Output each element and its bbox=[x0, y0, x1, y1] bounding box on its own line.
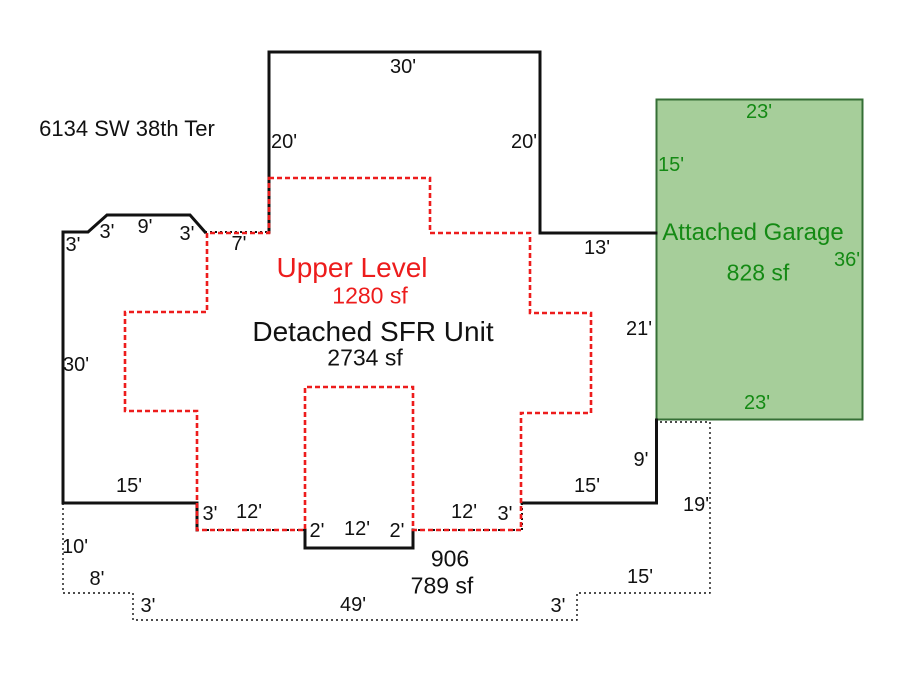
dim-main-left: 30' bbox=[63, 355, 89, 375]
dim-garage-top: 23' bbox=[746, 102, 772, 122]
dim-patio-bottom: 49' bbox=[340, 595, 366, 615]
dim-patio-left-v: 10' bbox=[62, 537, 88, 557]
garage-area: 828 sf bbox=[727, 262, 790, 285]
dim-corner-t: 9' bbox=[138, 217, 153, 237]
patio-area: 789 sf bbox=[411, 575, 474, 598]
dim-main-right-low: 9' bbox=[634, 450, 649, 470]
dim-patio-right-v: 19' bbox=[683, 495, 709, 515]
dim-main-bump-l: 2' bbox=[310, 521, 325, 541]
dim-patio-step-r: 3' bbox=[551, 596, 566, 616]
dim-main-top: 30' bbox=[390, 57, 416, 77]
dim-corner-d1: 3' bbox=[100, 222, 115, 242]
dim-main-upper-right: 20' bbox=[511, 132, 537, 152]
floorplan-sketch: 6134 SW 38th Ter Upper Level 1280 sf Det… bbox=[0, 0, 900, 675]
patio-id: 906 bbox=[431, 548, 469, 571]
sfr-title: Detached SFR Unit bbox=[252, 318, 493, 346]
dim-garage-right: 36' bbox=[834, 250, 860, 270]
dim-main-notch-r-v: 3' bbox=[498, 504, 513, 524]
dim-garage-left: 15' bbox=[658, 155, 684, 175]
dim-main-step: 13' bbox=[584, 238, 610, 258]
dim-patio-step-l: 3' bbox=[141, 596, 156, 616]
dim-corner-v: 3' bbox=[66, 235, 81, 255]
upper-level-title: Upper Level bbox=[277, 254, 428, 282]
dim-garage-bottom: 23' bbox=[744, 393, 770, 413]
patio-outline-path bbox=[63, 422, 710, 620]
dim-main-upper-left: 20' bbox=[271, 132, 297, 152]
dim-corner-d2: 3' bbox=[180, 224, 195, 244]
dim-main-bottom-right: 15' bbox=[574, 476, 600, 496]
dim-patio-right-h: 15' bbox=[627, 567, 653, 587]
garage-title: Attached Garage bbox=[662, 221, 843, 245]
dim-main-notch-r-h: 12' bbox=[451, 502, 477, 522]
dim-main-bump-b: 12' bbox=[344, 519, 370, 539]
dim-main-notch-l-h: 12' bbox=[236, 502, 262, 522]
dim-main-bottom-left: 15' bbox=[116, 476, 142, 496]
address-label: 6134 SW 38th Ter bbox=[39, 118, 215, 140]
dim-porch: 7' bbox=[232, 234, 247, 254]
upper-level-area: 1280 sf bbox=[332, 285, 407, 308]
sfr-area: 2734 sf bbox=[327, 347, 402, 370]
sfr-outline-top-path bbox=[269, 52, 656, 233]
dim-main-bump-r: 2' bbox=[390, 521, 405, 541]
dim-patio-left-h: 8' bbox=[90, 569, 105, 589]
dim-main-right-mid: 21' bbox=[626, 319, 652, 339]
dim-main-notch-l-v: 3' bbox=[203, 504, 218, 524]
